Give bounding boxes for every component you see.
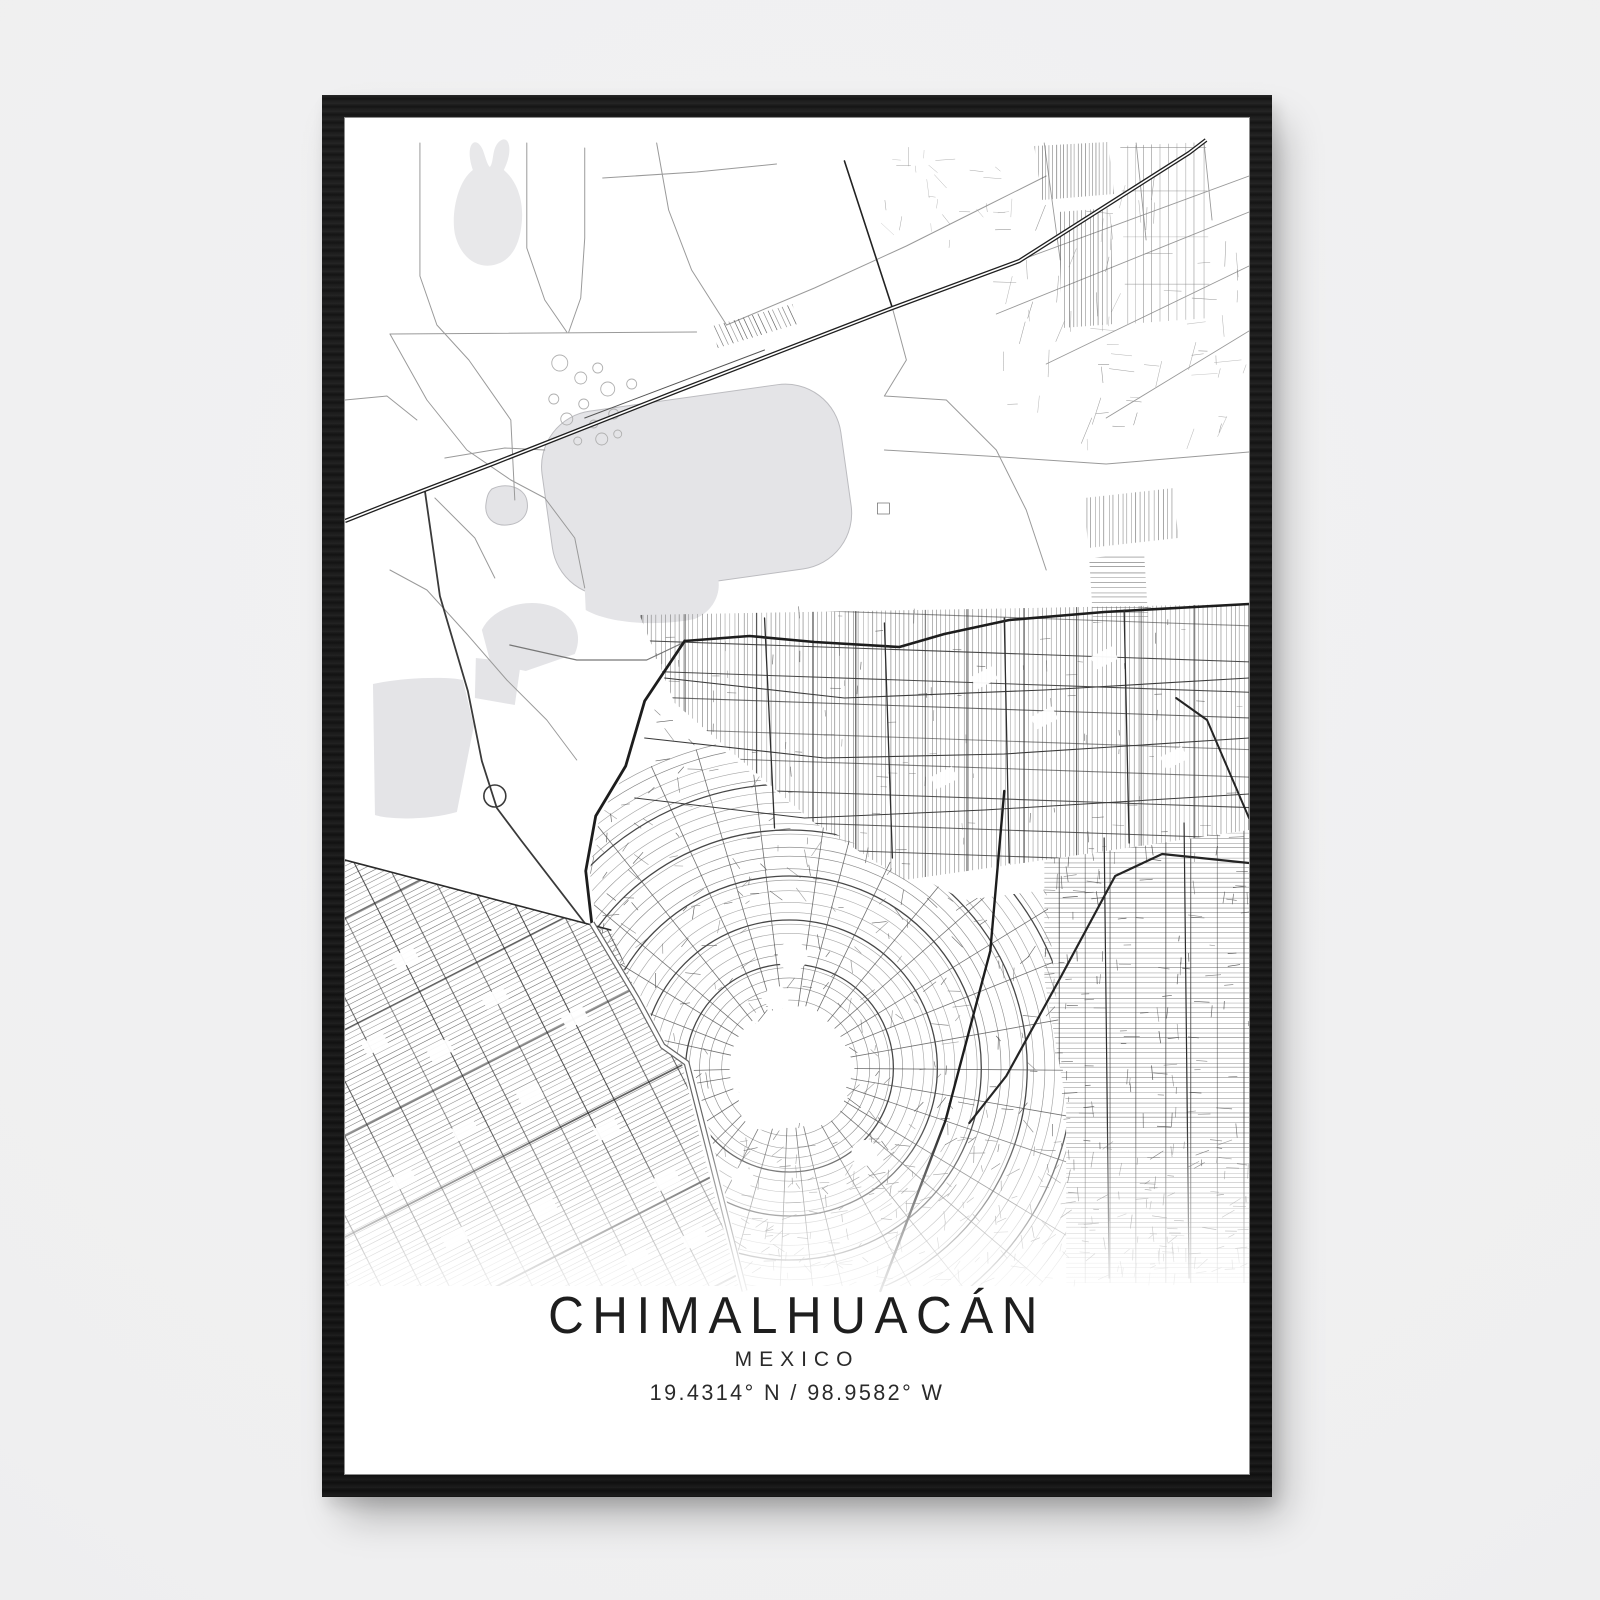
city-map	[345, 118, 1249, 1474]
caption-whitespace	[345, 1318, 1249, 1474]
map-fade	[345, 1108, 1249, 1333]
poster-frame: CHIMALHUACÁN MEXICO 19.4314° N / 98.9582…	[322, 95, 1272, 1497]
wall-background: CHIMALHUACÁN MEXICO 19.4314° N / 98.9582…	[0, 0, 1600, 1600]
poster: CHIMALHUACÁN MEXICO 19.4314° N / 98.9582…	[345, 118, 1249, 1474]
